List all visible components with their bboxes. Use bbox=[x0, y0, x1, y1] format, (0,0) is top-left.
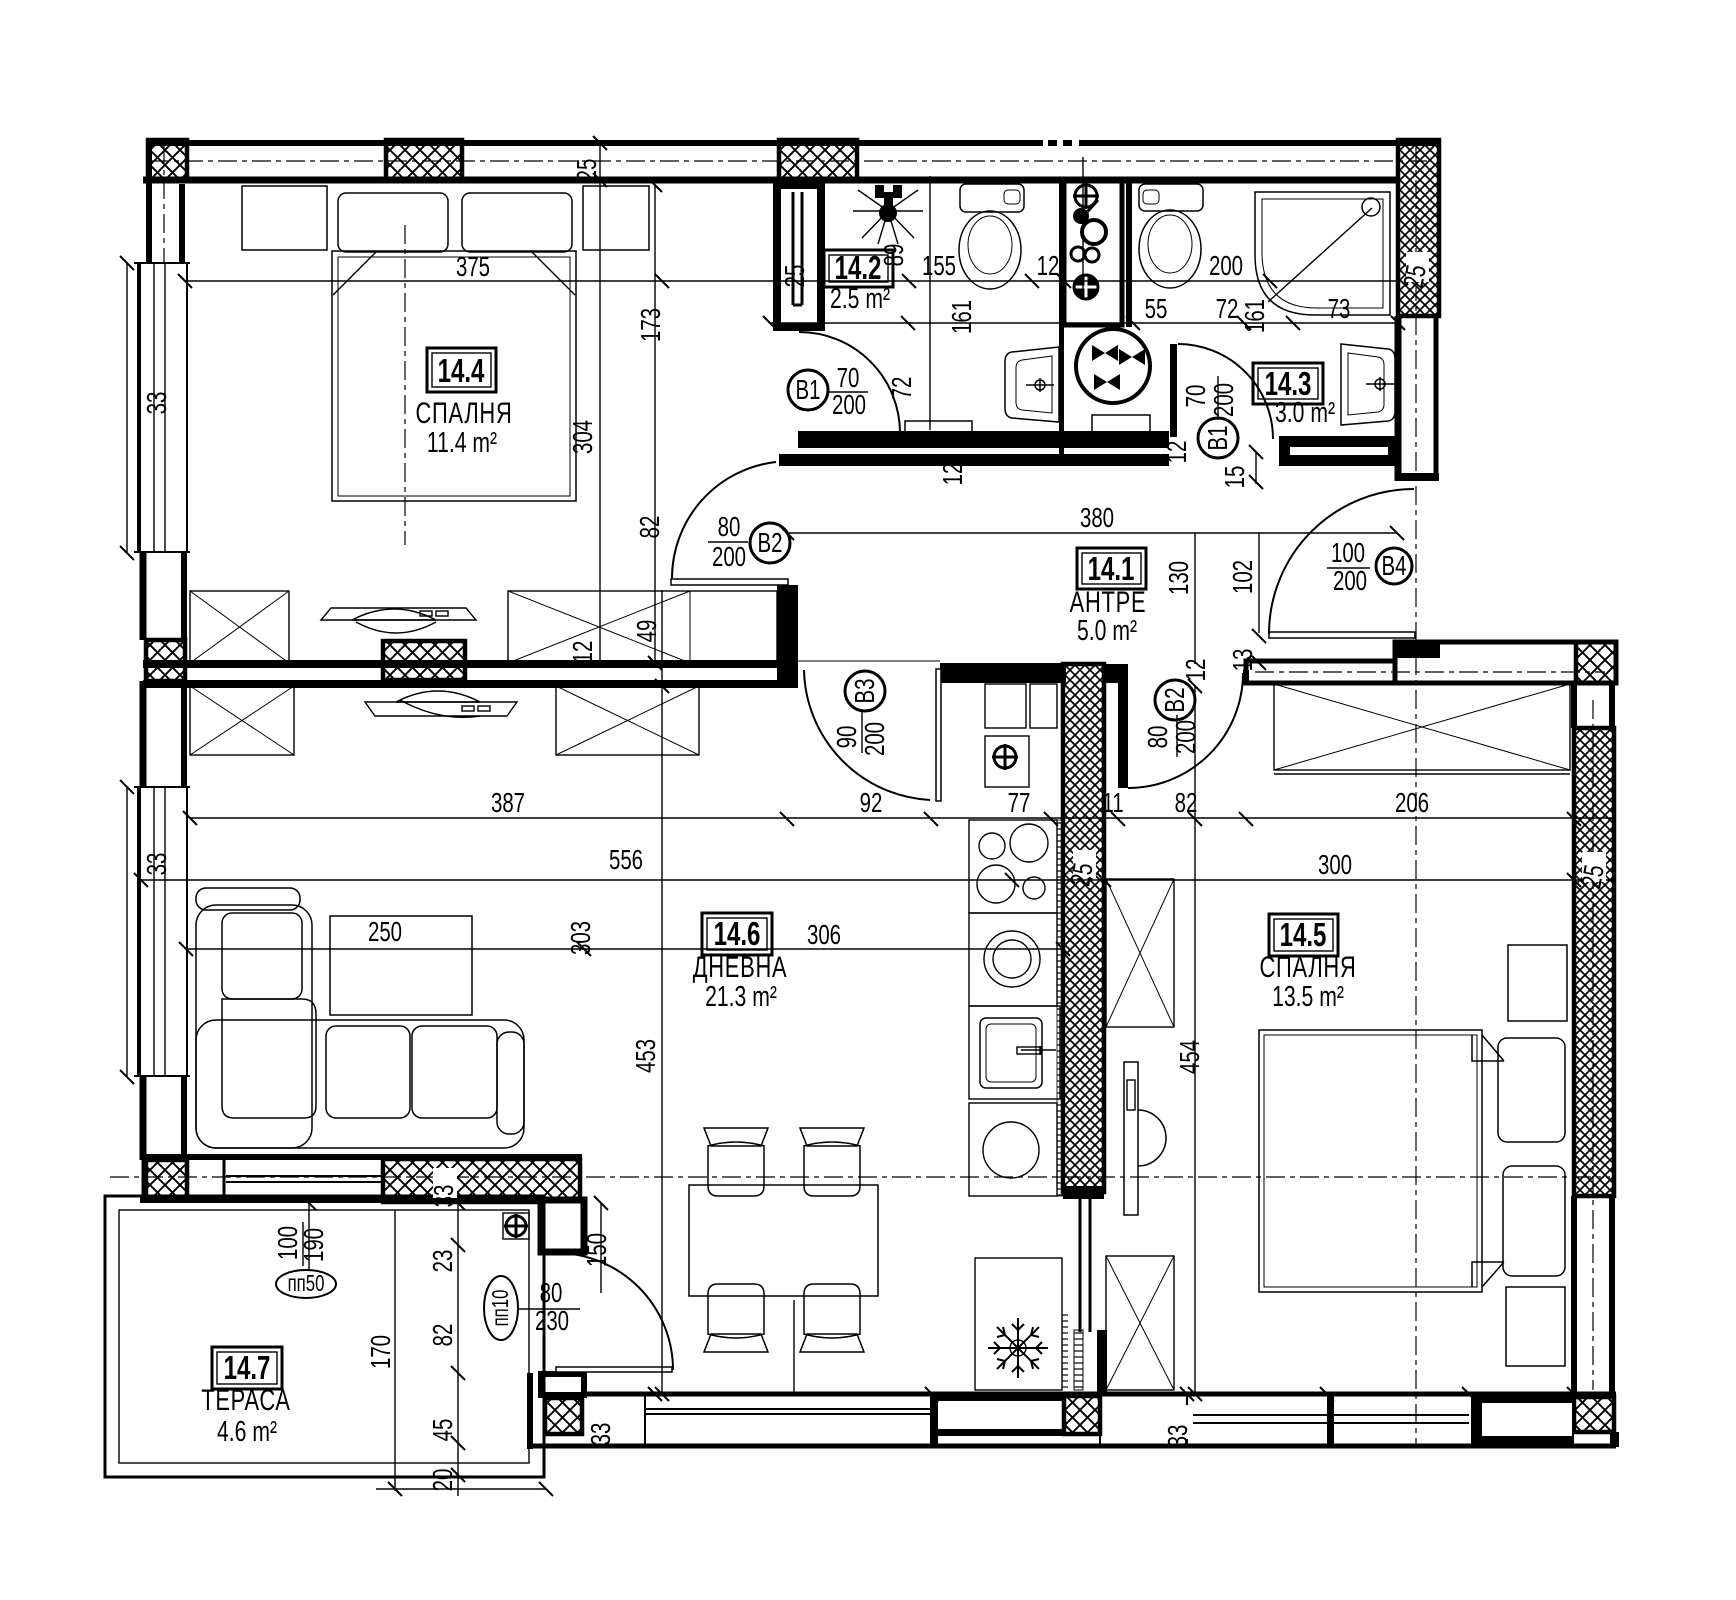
svg-text:14.6: 14.6 bbox=[714, 916, 761, 953]
svg-text:пп10: пп10 bbox=[489, 1290, 514, 1327]
svg-text:200: 200 bbox=[860, 722, 891, 756]
svg-text:12: 12 bbox=[938, 463, 969, 486]
svg-text:80: 80 bbox=[540, 1278, 563, 1309]
svg-text:453: 453 bbox=[631, 1039, 662, 1073]
svg-text:300: 300 bbox=[1318, 850, 1352, 881]
svg-text:82: 82 bbox=[1175, 788, 1198, 819]
svg-text:206: 206 bbox=[1395, 788, 1429, 819]
svg-text:190: 190 bbox=[299, 1228, 330, 1262]
svg-text:89: 89 bbox=[879, 244, 910, 267]
svg-text:155: 155 bbox=[922, 251, 956, 282]
svg-text:11: 11 bbox=[1102, 788, 1123, 819]
svg-text:12: 12 bbox=[1037, 251, 1060, 282]
svg-text:92: 92 bbox=[860, 788, 883, 819]
svg-text:25: 25 bbox=[572, 159, 603, 182]
svg-text:80: 80 bbox=[1143, 726, 1174, 749]
svg-text:73: 73 bbox=[1328, 294, 1351, 325]
svg-text:3.0 m²: 3.0 m² bbox=[1275, 397, 1335, 429]
svg-text:13: 13 bbox=[1228, 649, 1259, 672]
svg-text:306: 306 bbox=[807, 920, 841, 951]
svg-text:72: 72 bbox=[887, 377, 918, 400]
svg-text:200: 200 bbox=[1209, 251, 1243, 282]
svg-text:12: 12 bbox=[1181, 659, 1212, 682]
svg-text:45: 45 bbox=[428, 1419, 459, 1442]
svg-text:230: 230 bbox=[535, 1306, 569, 1337]
svg-text:250: 250 bbox=[368, 917, 402, 948]
svg-text:23: 23 bbox=[428, 1250, 459, 1273]
svg-text:ТЕРАСА: ТЕРАСА bbox=[201, 1383, 291, 1417]
svg-text:77: 77 bbox=[1008, 788, 1031, 819]
svg-text:80: 80 bbox=[718, 512, 741, 543]
svg-text:70: 70 bbox=[1181, 385, 1212, 408]
svg-text:49: 49 bbox=[632, 620, 663, 643]
svg-text:102: 102 bbox=[1228, 560, 1259, 594]
svg-text:25: 25 bbox=[780, 265, 811, 288]
svg-text:170: 170 bbox=[366, 1335, 397, 1369]
svg-text:200: 200 bbox=[1209, 383, 1240, 417]
svg-text:4.6 m²: 4.6 m² bbox=[217, 1416, 277, 1448]
svg-text:55: 55 bbox=[1145, 294, 1168, 325]
svg-text:14.2: 14.2 bbox=[835, 250, 882, 287]
svg-text:454: 454 bbox=[1175, 1040, 1206, 1074]
svg-text:82: 82 bbox=[635, 516, 666, 539]
svg-text:72: 72 bbox=[1216, 294, 1239, 325]
svg-text:СПАЛНЯ: СПАЛНЯ bbox=[1260, 950, 1357, 984]
svg-text:B1: B1 bbox=[796, 375, 821, 406]
svg-text:90: 90 bbox=[832, 726, 863, 749]
svg-text:B2: B2 bbox=[1160, 688, 1191, 713]
svg-text:12: 12 bbox=[1162, 441, 1193, 464]
svg-text:33: 33 bbox=[142, 392, 173, 415]
svg-text:161: 161 bbox=[947, 300, 978, 334]
svg-text:5.0 m²: 5.0 m² bbox=[1077, 615, 1137, 647]
svg-text:ДНЕВНА: ДНЕВНА bbox=[693, 950, 788, 984]
svg-text:B3: B3 bbox=[850, 679, 881, 704]
svg-text:20: 20 bbox=[428, 1469, 459, 1492]
svg-text:13.5 m²: 13.5 m² bbox=[1272, 981, 1344, 1013]
svg-text:2.5 m²: 2.5 m² bbox=[830, 283, 890, 315]
svg-text:173: 173 bbox=[636, 308, 667, 342]
svg-text:14.1: 14.1 bbox=[1088, 551, 1135, 588]
svg-text:15: 15 bbox=[1220, 466, 1251, 489]
svg-text:11.4 m²: 11.4 m² bbox=[427, 427, 497, 459]
svg-text:82: 82 bbox=[428, 1324, 459, 1347]
svg-text:14.4: 14.4 bbox=[438, 353, 485, 390]
svg-text:150: 150 bbox=[582, 1233, 613, 1267]
svg-text:пп50: пп50 bbox=[288, 1272, 325, 1297]
svg-text:375: 375 bbox=[456, 252, 490, 283]
svg-text:21.3 m²: 21.3 m² bbox=[705, 981, 777, 1013]
svg-text:100: 100 bbox=[1331, 538, 1365, 569]
svg-text:200: 200 bbox=[832, 390, 866, 421]
svg-text:304: 304 bbox=[568, 420, 599, 454]
svg-text:33: 33 bbox=[586, 1423, 617, 1446]
svg-text:200: 200 bbox=[1333, 566, 1367, 597]
svg-text:33: 33 bbox=[142, 853, 173, 876]
svg-text:161: 161 bbox=[1240, 299, 1271, 333]
svg-text:14.7: 14.7 bbox=[224, 1350, 271, 1387]
svg-text:387: 387 bbox=[491, 788, 525, 819]
svg-text:B4: B4 bbox=[1382, 551, 1407, 582]
svg-text:14.5: 14.5 bbox=[1280, 917, 1327, 954]
svg-text:B2: B2 bbox=[758, 528, 783, 559]
svg-text:АНТРЕ: АНТРЕ bbox=[1070, 585, 1147, 619]
svg-text:B1: B1 bbox=[1203, 426, 1234, 451]
svg-text:33: 33 bbox=[1163, 1425, 1194, 1448]
svg-text:200: 200 bbox=[1171, 720, 1202, 754]
svg-text:СПАЛНЯ: СПАЛНЯ bbox=[416, 396, 513, 430]
svg-text:303: 303 bbox=[566, 921, 597, 955]
svg-text:380: 380 bbox=[1080, 503, 1114, 534]
svg-text:556: 556 bbox=[609, 845, 643, 876]
svg-text:200: 200 bbox=[712, 542, 746, 573]
svg-text:130: 130 bbox=[1164, 561, 1195, 595]
svg-text:33: 33 bbox=[429, 1185, 460, 1208]
svg-text:12: 12 bbox=[568, 641, 599, 664]
